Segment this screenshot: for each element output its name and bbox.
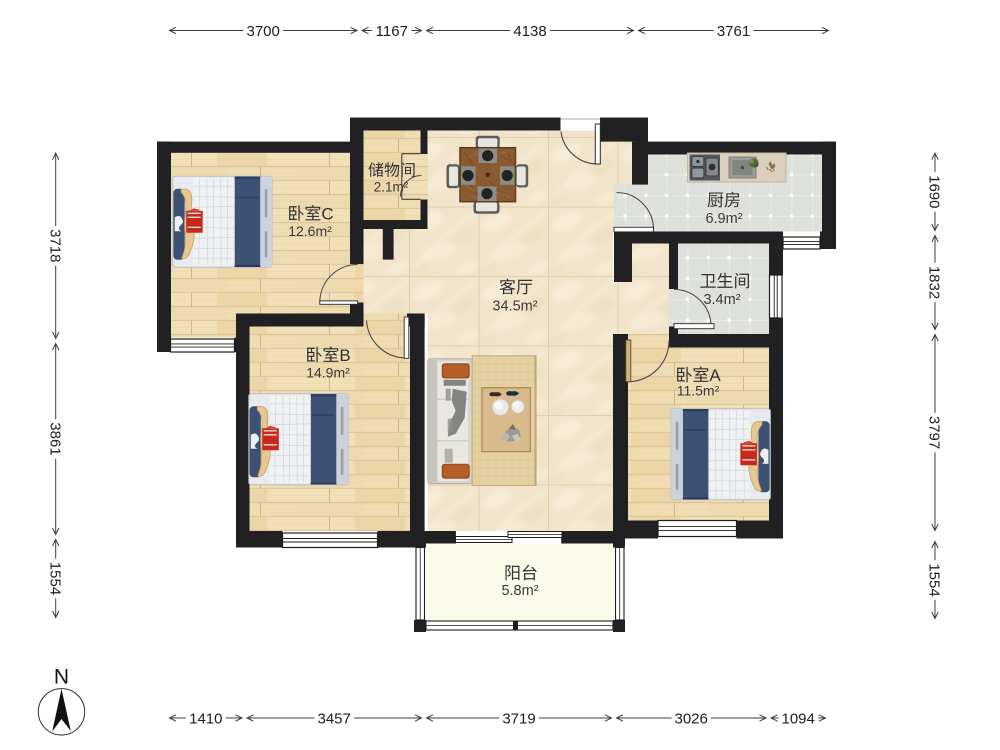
svg-text:3457: 3457 [318,710,351,727]
svg-text:4138: 4138 [513,23,546,40]
svg-text:3797: 3797 [926,416,943,449]
svg-text:3.4m²: 3.4m² [703,292,740,308]
svg-text:14.9m²: 14.9m² [306,364,350,380]
svg-text:2.1m²: 2.1m² [374,180,409,195]
svg-text:1554: 1554 [926,563,943,596]
svg-text:1094: 1094 [782,710,815,727]
svg-text:3700: 3700 [247,23,280,40]
svg-text:1410: 1410 [189,710,222,727]
svg-text:N: N [54,666,69,689]
svg-text:34.5m²: 34.5m² [492,299,537,315]
svg-text:3761: 3761 [717,23,750,40]
svg-text:3719: 3719 [502,710,535,727]
svg-text:11.5m²: 11.5m² [677,382,720,398]
svg-text:3718: 3718 [46,229,63,262]
svg-text:6.9m²: 6.9m² [705,211,742,227]
svg-text:1167: 1167 [376,23,408,40]
svg-text:B: B [339,346,350,365]
svg-text:1832: 1832 [926,266,943,299]
svg-text:5.8m²: 5.8m² [501,583,538,599]
svg-text:12.6m²: 12.6m² [288,223,332,239]
svg-text:3861: 3861 [46,422,63,455]
svg-text:1690: 1690 [926,175,943,208]
svg-text:3026: 3026 [675,710,708,727]
svg-text:1554: 1554 [46,562,63,595]
svg-text:C: C [321,205,333,224]
